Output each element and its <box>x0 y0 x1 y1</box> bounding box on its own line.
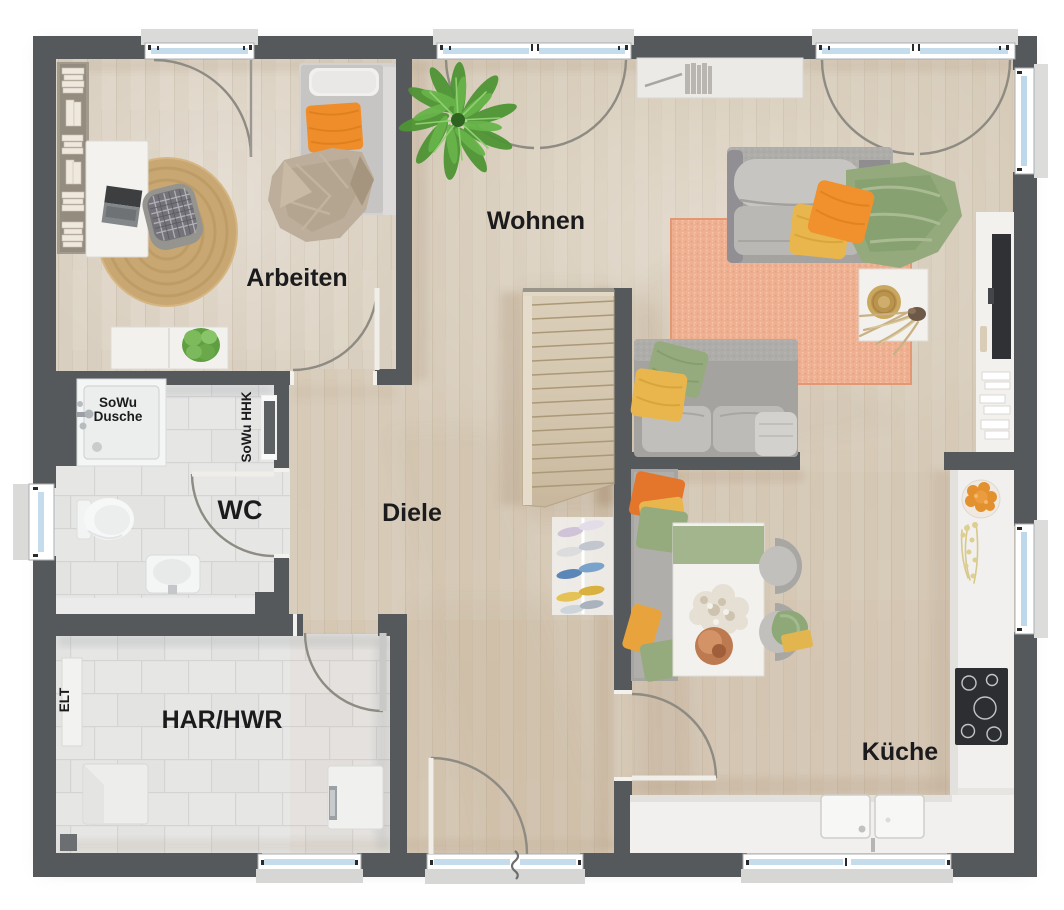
svg-text:WC: WC <box>218 495 263 525</box>
svg-text:HAR/HWR: HAR/HWR <box>162 706 283 734</box>
svg-text:SoWu HHK: SoWu HHK <box>239 391 254 462</box>
svg-text:Dusche: Dusche <box>94 409 143 424</box>
svg-text:SoWu: SoWu <box>99 395 137 410</box>
svg-text:Arbeiten: Arbeiten <box>246 264 347 292</box>
svg-text:Küche: Küche <box>862 738 939 766</box>
svg-text:Diele: Diele <box>382 499 442 527</box>
svg-text:ELT: ELT <box>57 687 72 712</box>
svg-text:Wohnen: Wohnen <box>487 207 585 235</box>
